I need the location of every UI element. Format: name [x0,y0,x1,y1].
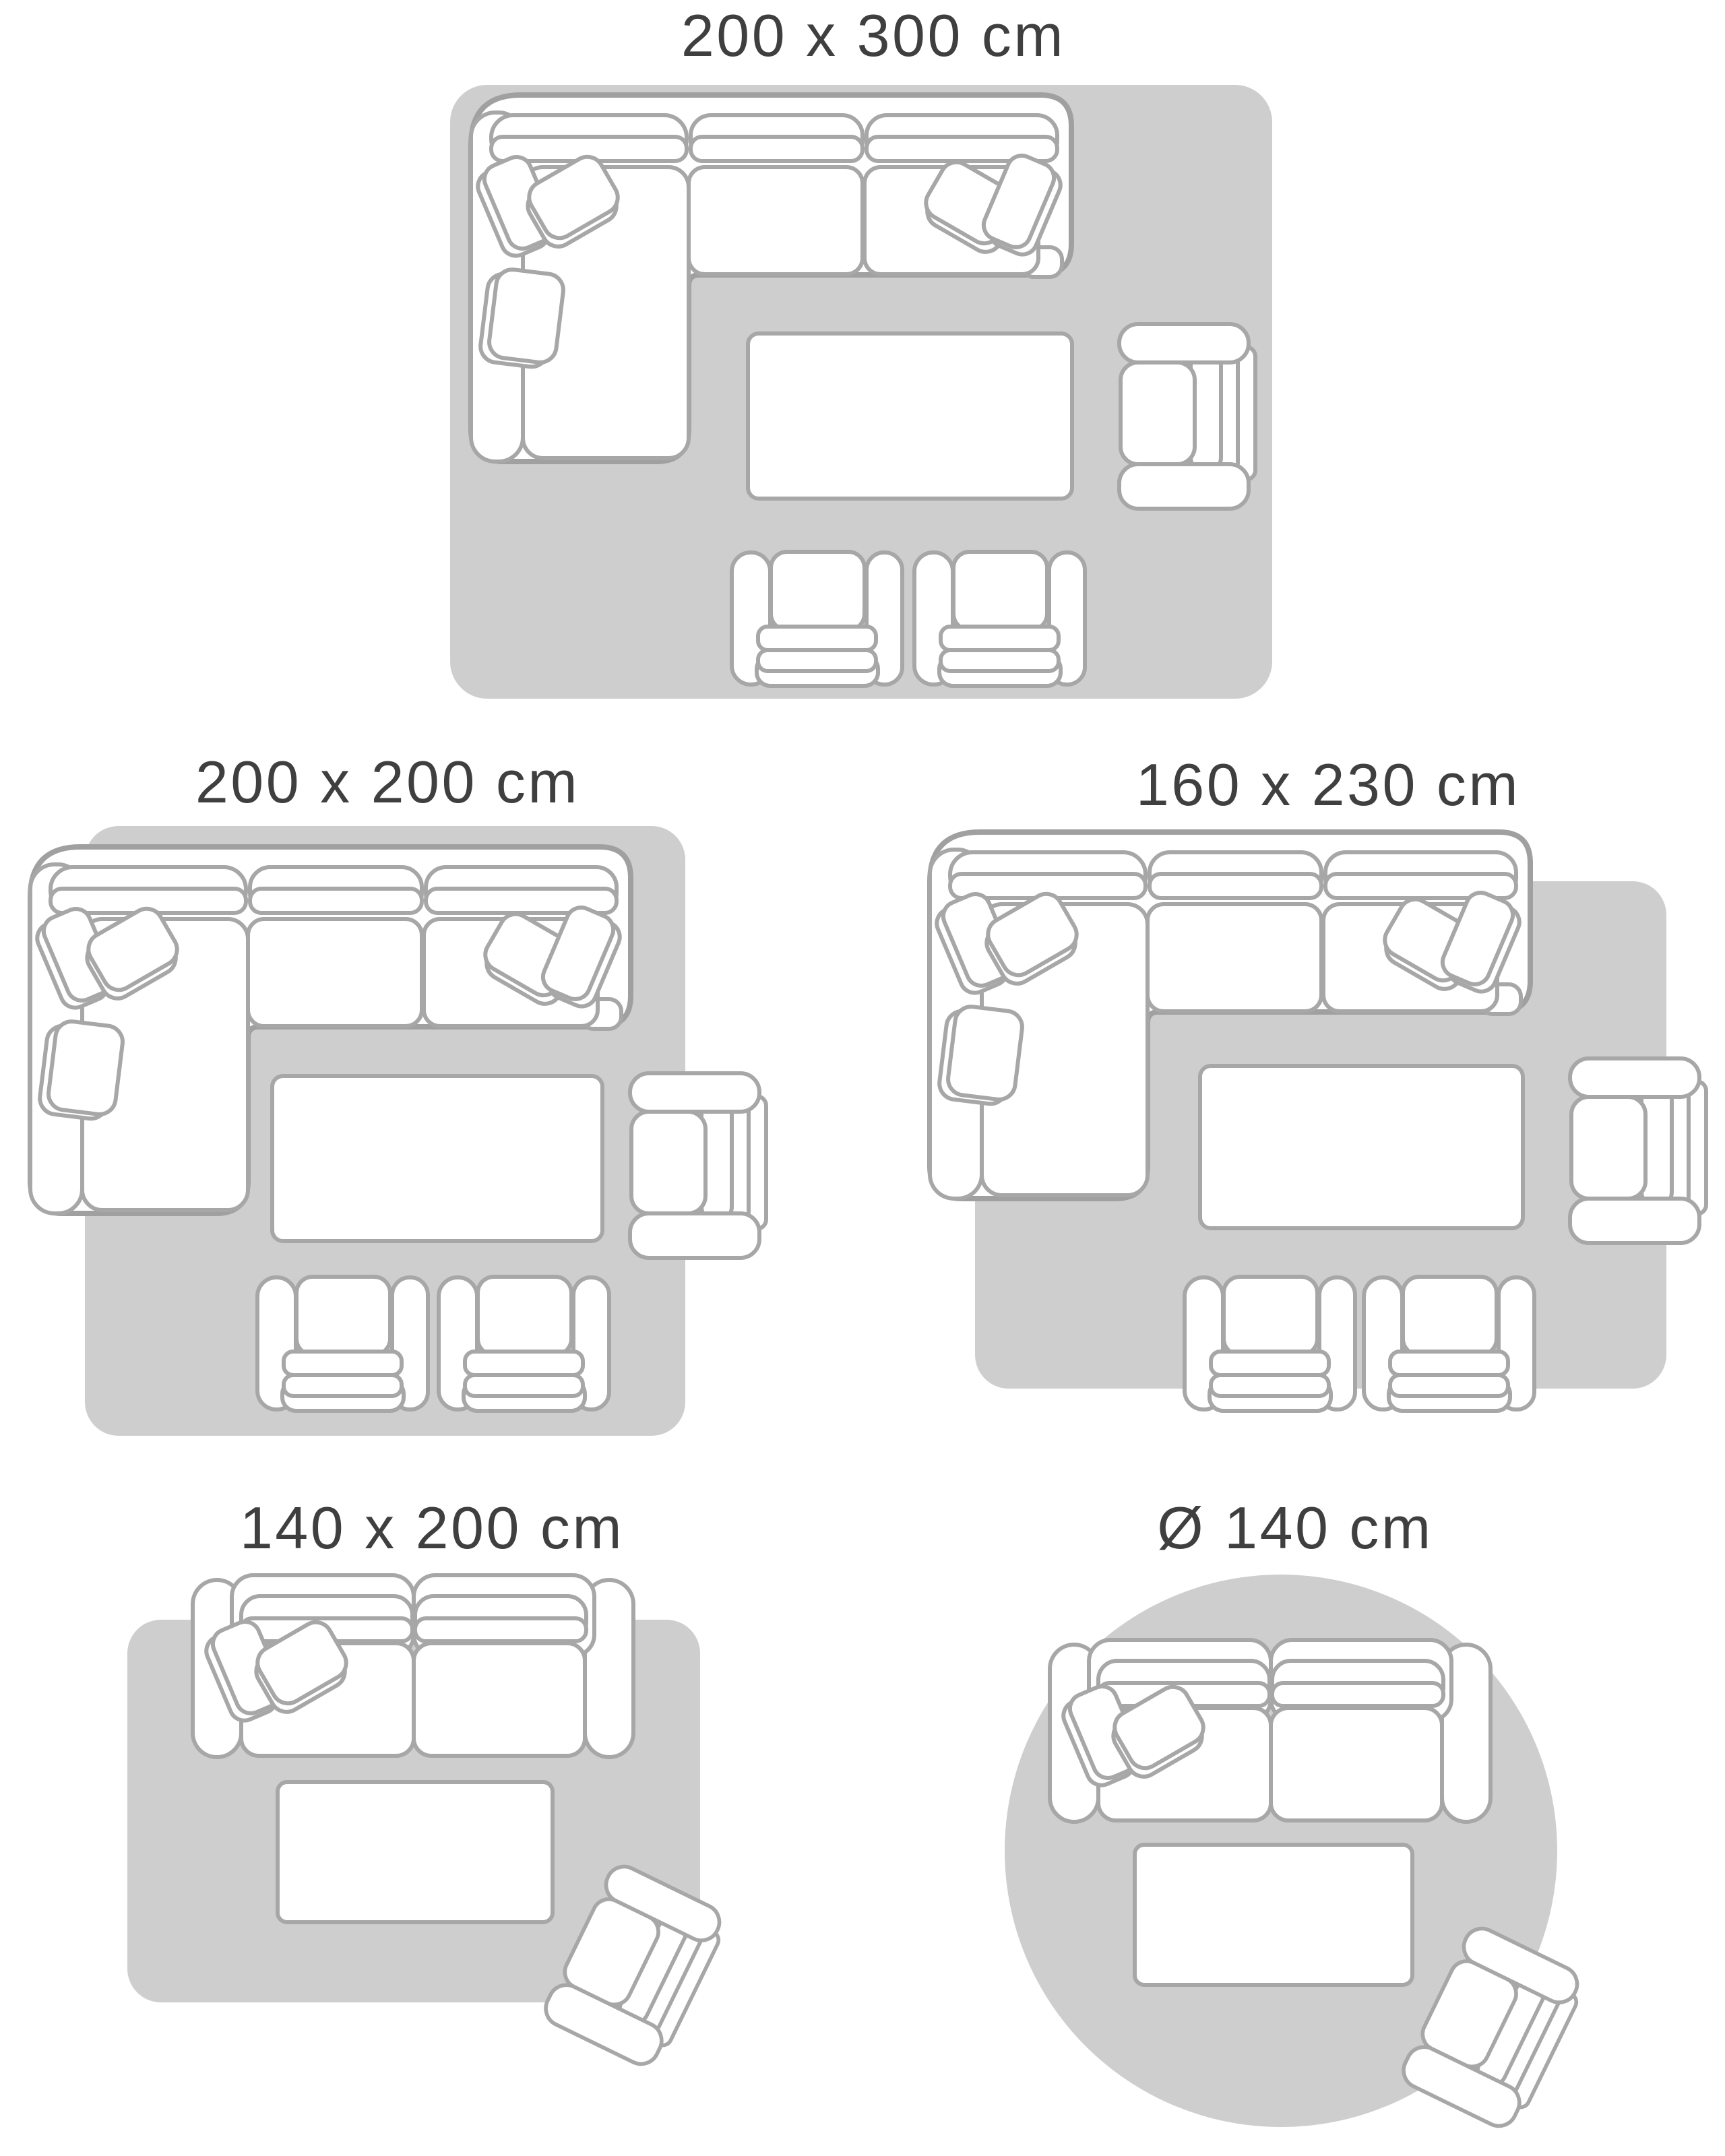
svg-text:200 x 200 cm: 200 x 200 cm [195,749,579,815]
svg-text:140 x 200 cm: 140 x 200 cm [240,1494,624,1561]
svg-text:Ø 140 cm: Ø 140 cm [1157,1494,1433,1561]
svg-text:200 x 300 cm: 200 x 300 cm [681,2,1065,69]
svg-text:160 x 230 cm: 160 x 230 cm [1136,751,1520,818]
